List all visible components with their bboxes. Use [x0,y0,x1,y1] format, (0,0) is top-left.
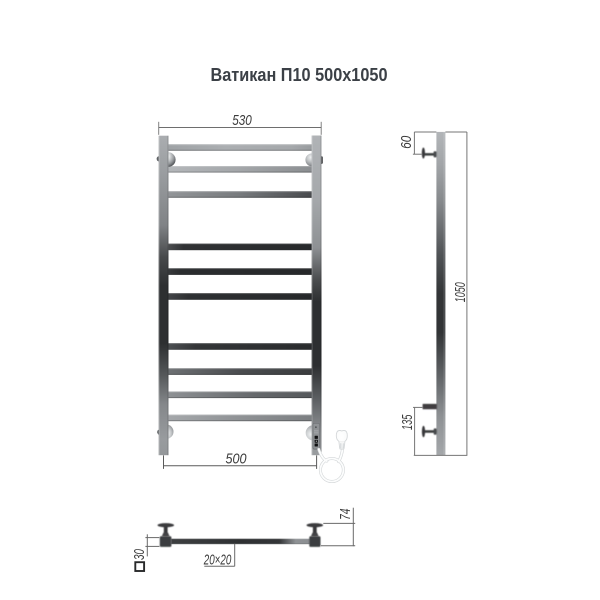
svg-text:60: 60 [398,135,415,149]
svg-text:530: 530 [232,112,252,129]
svg-text:30: 30 [131,549,148,560]
svg-text:135: 135 [399,414,416,430]
svg-text:Ватикан П10 500x1050: Ватикан П10 500x1050 [211,64,388,85]
svg-text:1050: 1050 [452,282,469,302]
svg-text:20×20: 20×20 [203,551,232,568]
svg-text:500: 500 [226,450,248,467]
svg-text:74: 74 [337,508,354,520]
